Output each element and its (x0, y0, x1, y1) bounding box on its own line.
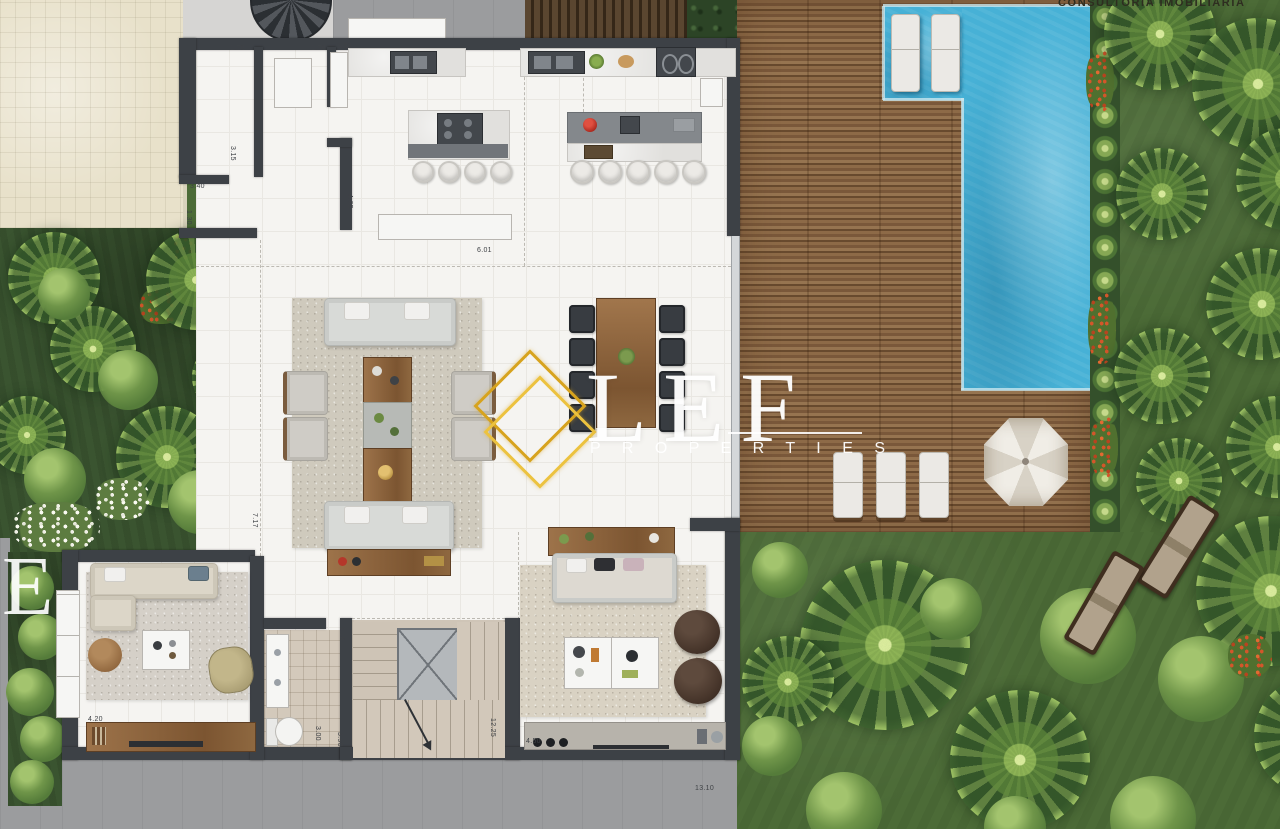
bathroom-vanity (266, 634, 289, 708)
red-flower-bed (1228, 634, 1272, 678)
area-divider-dashed (524, 52, 525, 266)
faucet (274, 649, 281, 656)
wall-bath-right (340, 618, 352, 760)
plant-decor (585, 532, 594, 541)
pool-coping (882, 6, 885, 100)
sun-lounger (833, 452, 863, 518)
bottom-left-concrete (0, 806, 64, 829)
console-table (327, 549, 451, 576)
toilet (275, 717, 303, 746)
decor (649, 533, 659, 543)
decor (153, 641, 162, 650)
round-side-table (88, 638, 122, 672)
in-pool-lounger (931, 14, 960, 92)
window-bay (56, 590, 80, 718)
console-table (548, 527, 675, 556)
tv-screen (593, 745, 669, 749)
area-divider-dashed (260, 240, 261, 556)
bar-stool (598, 160, 622, 184)
sink-basin (395, 56, 409, 69)
shrub (6, 668, 54, 716)
area-divider-dashed (352, 618, 505, 619)
tv-screen (129, 741, 203, 747)
spice-rack (700, 78, 723, 107)
decor (169, 640, 176, 647)
coffee-table-white (564, 637, 612, 689)
sun-lounger (919, 452, 949, 518)
stair-flight-right (457, 622, 505, 700)
decor (372, 366, 382, 376)
coffee-table (363, 357, 412, 404)
shrub (742, 716, 802, 776)
plant-decor (390, 427, 399, 436)
gazebo-center (1022, 458, 1029, 465)
bar-stool (682, 160, 706, 184)
armchair (451, 417, 496, 461)
front-door (274, 58, 312, 108)
sofa-pillow (344, 506, 370, 524)
books (92, 727, 106, 745)
shrub (24, 448, 86, 510)
wall-tv-room-top (690, 518, 740, 531)
blue-pillow (188, 566, 209, 581)
sectional-chaise (90, 595, 136, 631)
stair-void (397, 628, 459, 702)
watermark-partial-letter: E (2, 538, 53, 635)
entry-door (330, 52, 348, 108)
wall-foyer (179, 175, 229, 184)
sink-basin (534, 56, 551, 69)
top-hedge (687, 0, 739, 40)
red-flower-bed (1088, 292, 1116, 364)
bar-stool (626, 160, 650, 184)
sofa-pillow (344, 302, 370, 320)
dining-chair (569, 305, 595, 333)
grill-cooktop (656, 47, 696, 77)
decor (573, 646, 585, 658)
media-console (524, 722, 726, 750)
bottom-concrete-path (62, 758, 740, 829)
coffee-table (363, 448, 412, 503)
white-flower-bed (94, 478, 150, 520)
speaker (533, 738, 542, 747)
armchair (283, 417, 328, 461)
decor (169, 652, 176, 659)
decor (338, 557, 347, 566)
pool-coping (961, 98, 964, 390)
island-stool (412, 161, 434, 183)
pool-coping (961, 388, 1090, 391)
speaker (559, 738, 568, 747)
burner (464, 131, 472, 139)
canisters (673, 118, 695, 132)
island-stool (438, 161, 460, 183)
burner (444, 119, 452, 127)
burner (444, 131, 452, 139)
shrub (920, 578, 982, 640)
island-stool (490, 161, 512, 183)
decor (697, 729, 707, 744)
area-divider-dashed (196, 266, 736, 267)
shrub (38, 268, 90, 320)
sun-lounger (876, 452, 906, 518)
pouf (674, 610, 720, 654)
sofa-pillow (404, 302, 430, 320)
plant-decor (374, 413, 384, 423)
bar-stool (654, 160, 678, 184)
wall-kitchen-left (340, 138, 352, 230)
dining-chair (659, 305, 685, 333)
burner (464, 119, 472, 127)
red-flower-bed (1090, 416, 1118, 478)
shrub (98, 350, 158, 410)
wood-slat-pergola (525, 0, 687, 38)
decor (626, 650, 638, 662)
stone-paving-area (0, 0, 187, 234)
sideboard (378, 214, 512, 240)
sink-basin (556, 56, 573, 69)
coffee-table-white (611, 637, 659, 689)
wall-left-upper (179, 38, 196, 178)
wall-tv-room-right (725, 518, 740, 760)
plant-decor (559, 534, 569, 544)
decor (622, 670, 638, 678)
palm-tree (1116, 148, 1208, 240)
pink-pillow (623, 558, 644, 571)
wall-kitchen-corner (327, 138, 352, 147)
serving-tray (584, 145, 613, 159)
island-base (408, 144, 508, 158)
consultancy-header-text: CONSULTORIA IMOBILIÁRIA (1058, 0, 1246, 9)
armchair (283, 371, 328, 415)
speaker (546, 738, 555, 747)
palm-tree (1114, 328, 1210, 424)
faucet (274, 679, 281, 686)
sofa-pillow (104, 567, 126, 582)
sofa-pillow (402, 506, 428, 524)
wall-closet (254, 47, 263, 177)
watermark-rule (728, 432, 862, 434)
burner (678, 54, 694, 74)
decor (575, 668, 584, 677)
decor (591, 648, 599, 662)
wall-stairs-right (505, 618, 520, 760)
tv-console (86, 722, 256, 752)
decor (352, 557, 361, 566)
gold-bowl (378, 465, 393, 480)
coffee-table-white (142, 630, 190, 670)
burner (662, 54, 678, 74)
in-pool-lounger (891, 14, 920, 92)
sink-basin (413, 56, 427, 69)
decor (390, 376, 399, 385)
shrub (752, 542, 808, 598)
bar-stool (570, 160, 594, 184)
kitchen-sink (528, 51, 585, 74)
floor-plan-canvas: E LEF P R O P E R T I E S CONSULTORIA IM… (0, 0, 1280, 829)
black-pillow (594, 558, 615, 571)
shrub (20, 716, 66, 762)
wall-family-top (62, 550, 255, 562)
kitchen-sink (390, 51, 437, 74)
cooktop (437, 113, 483, 145)
pouf (674, 658, 722, 704)
red-kettle (583, 118, 597, 132)
shrub (10, 760, 54, 804)
wall-bath-top (264, 618, 326, 629)
swimming-pool (962, 6, 1090, 390)
area-divider-dashed (518, 532, 519, 620)
wall-vestibule (179, 228, 257, 238)
island-stool (464, 161, 486, 183)
stair-flight-upper (353, 622, 397, 700)
bread-plate (618, 55, 634, 68)
palm-tree (742, 636, 834, 728)
coffee-machine (620, 116, 640, 134)
decor (424, 556, 444, 566)
coffee-table-marble (363, 402, 412, 450)
decor (711, 731, 723, 743)
watermark-tagline: P R O P E R T I E S (590, 440, 893, 458)
fruit-bowl (589, 54, 604, 69)
pool-coping (883, 98, 964, 101)
sofa-pillow (566, 558, 587, 573)
